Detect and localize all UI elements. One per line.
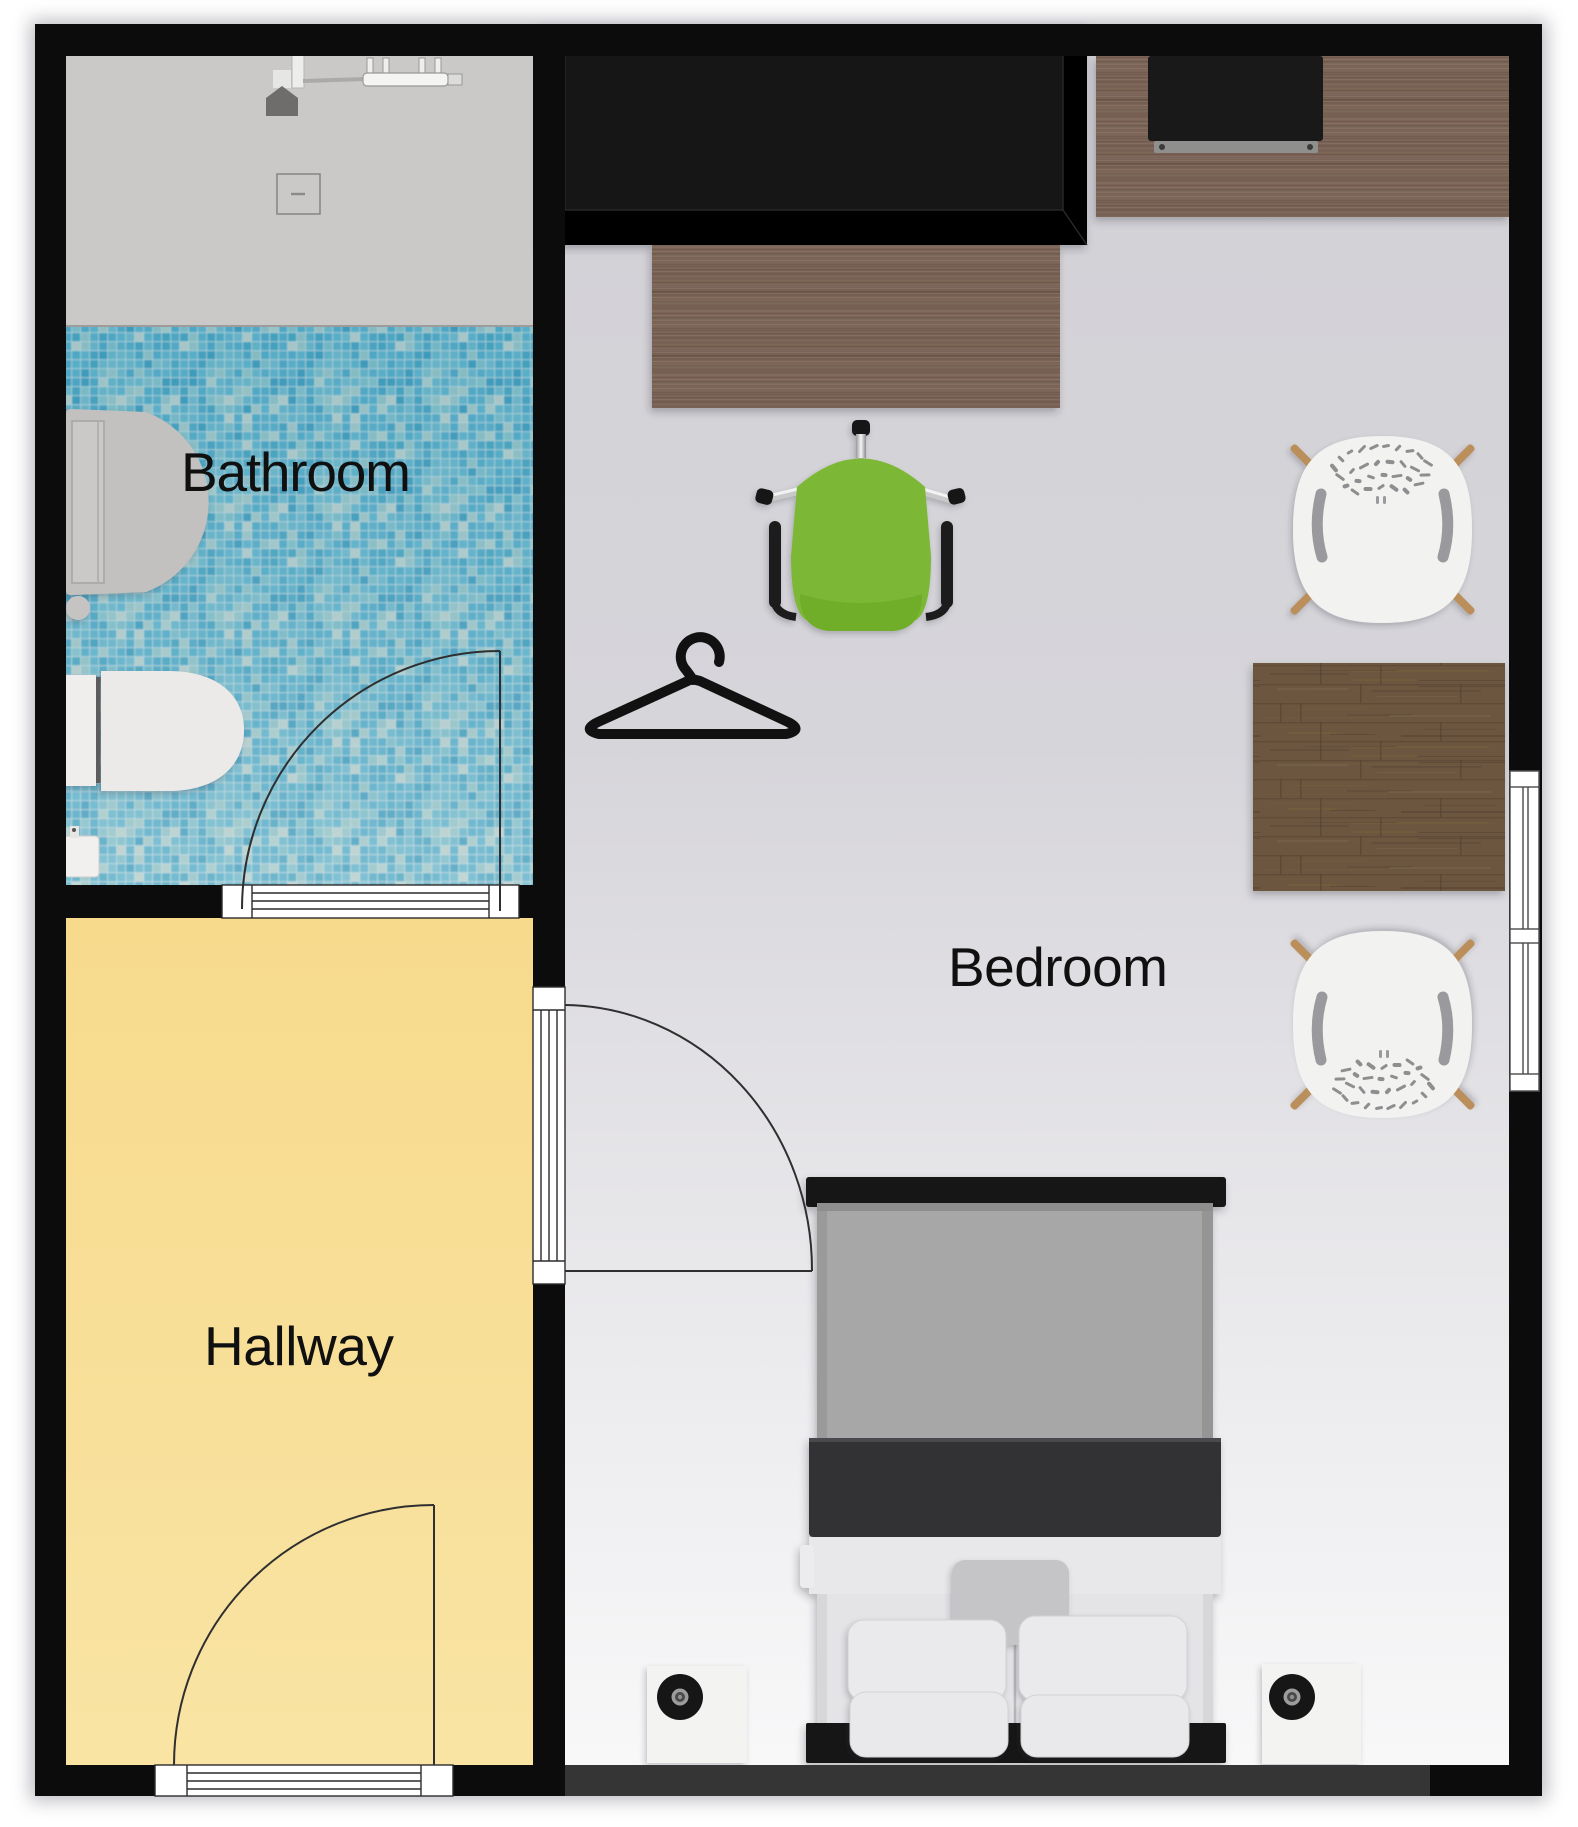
svg-text:Bathroom: Bathroom xyxy=(181,441,411,503)
svg-text:Bedroom: Bedroom xyxy=(948,936,1168,998)
svg-text:Hallway: Hallway xyxy=(204,1315,395,1377)
